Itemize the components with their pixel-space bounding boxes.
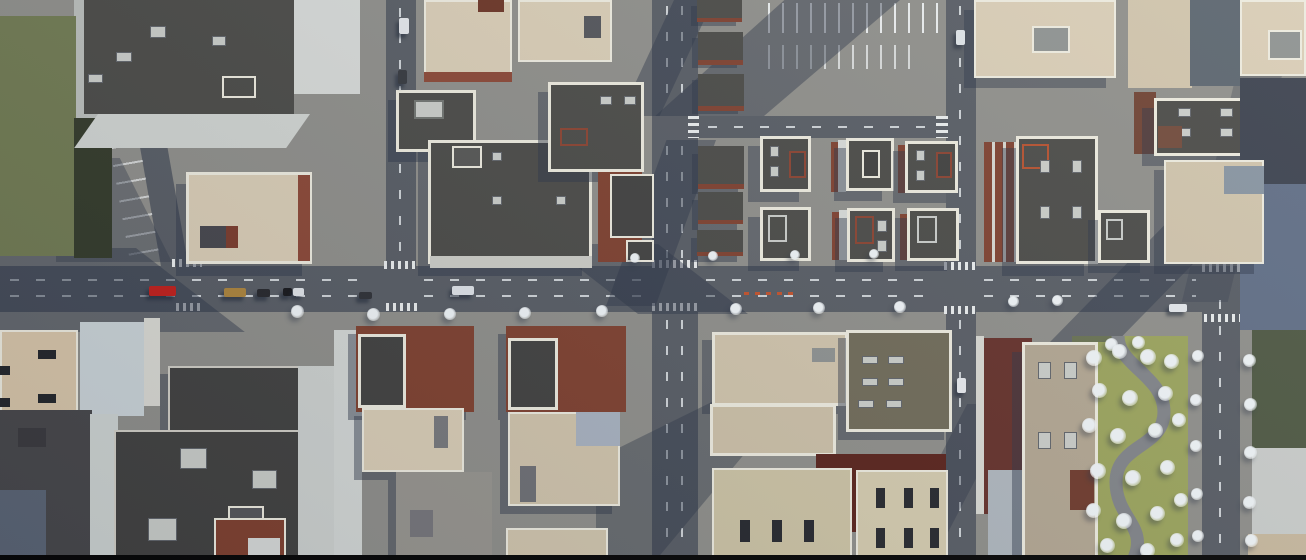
- crosswalk: [1204, 314, 1240, 322]
- park-tree: [1090, 463, 1106, 479]
- facade-col: [298, 366, 334, 560]
- beige-bldg-j: [712, 468, 852, 560]
- tree: [1190, 394, 1202, 406]
- tree: [1244, 446, 1257, 459]
- roof-vent: [492, 152, 502, 161]
- road-v5: [1202, 266, 1240, 560]
- green-tower: [0, 16, 76, 256]
- roof-vent: [150, 26, 166, 38]
- roof-vent-dark: [584, 16, 601, 38]
- facade-strip: [838, 140, 846, 192]
- window: [0, 398, 10, 407]
- lane-dash: [1219, 300, 1221, 552]
- bush: [519, 307, 531, 319]
- brick-strip: [832, 212, 839, 260]
- tree: [1245, 534, 1258, 547]
- small-bldg-brick: [697, 18, 742, 22]
- roof-vent: [1072, 206, 1082, 219]
- p2-roof: [508, 338, 558, 410]
- red-south-wall: [424, 72, 512, 82]
- park-tree: [1172, 413, 1186, 427]
- tree: [1191, 488, 1203, 500]
- park-tree: [1112, 344, 1127, 359]
- roof-unit: [1224, 166, 1264, 194]
- park-tree: [1125, 470, 1141, 486]
- roof-vent: [877, 220, 887, 232]
- lane-dash: [708, 126, 938, 128]
- roof-vent: [770, 166, 779, 177]
- roof-vent: [624, 96, 636, 105]
- roof-vent: [1220, 128, 1233, 137]
- park-tree: [1092, 383, 1107, 398]
- white-sliver: [976, 336, 984, 514]
- shadow-wedge-bldg: [0, 490, 46, 560]
- crosswalk: [944, 262, 978, 270]
- roof-unit: [222, 76, 256, 98]
- dark-roof-s1: [610, 174, 654, 238]
- road-marking-orange: [744, 292, 796, 295]
- bush: [630, 253, 640, 263]
- window: [772, 520, 782, 542]
- roof-vent: [888, 356, 904, 364]
- vehicle-dark-car: [359, 292, 372, 299]
- roof-unit: [452, 146, 482, 168]
- vehicle-dark-car: [398, 70, 407, 84]
- roof-patch-blue: [576, 412, 620, 446]
- vehicle-white-car: [1169, 304, 1187, 312]
- tan-building-nw: [186, 172, 312, 264]
- bush: [367, 308, 380, 321]
- roof-vent: [212, 36, 226, 46]
- vehicle-dark-car: [283, 288, 292, 296]
- park-tree: [1082, 418, 1097, 433]
- vehicle-red-truck: [149, 286, 176, 296]
- roof-vent: [916, 170, 925, 181]
- facade-east: [294, 0, 360, 94]
- vehicle-white-car: [293, 288, 304, 296]
- roof-vent: [1072, 160, 1082, 173]
- park-tree: [1140, 349, 1156, 365]
- roof-unit: [410, 510, 433, 537]
- park-tree: [1164, 354, 1179, 369]
- roof-unit: [434, 416, 448, 448]
- brick-strip: [900, 214, 907, 260]
- roof-vent: [88, 74, 103, 83]
- park-tree: [1122, 390, 1138, 406]
- bush: [869, 249, 879, 259]
- roof-unit: [812, 348, 835, 362]
- roof-vent: [1038, 432, 1051, 449]
- right-edge-white: [1252, 448, 1306, 534]
- blue-tower-tr: [1190, 0, 1240, 86]
- roof-unit: [1032, 26, 1070, 53]
- park-tree: [1158, 386, 1173, 401]
- small-bldg-roof: [698, 146, 744, 186]
- small-bldg-brick: [698, 184, 744, 189]
- vehicle-white-car: [957, 378, 966, 393]
- crosswalk: [384, 261, 418, 269]
- window: [804, 520, 814, 542]
- window: [38, 394, 56, 403]
- roof-unit: [1268, 30, 1302, 60]
- roof-unit: [936, 152, 952, 178]
- window: [740, 520, 750, 542]
- red-west-wall: [1134, 92, 1156, 154]
- roof-vent: [888, 378, 904, 386]
- vehicle-dark-car: [257, 289, 270, 297]
- facade-strip: [839, 210, 847, 260]
- bush: [708, 251, 718, 261]
- roof-vent: [1040, 160, 1050, 173]
- roof-vent: [1038, 362, 1051, 379]
- roof-unit: [148, 518, 177, 541]
- window: [876, 488, 885, 508]
- facade-grid-skew: [74, 114, 310, 148]
- small-bldg-roof: [698, 192, 743, 222]
- tree: [1192, 350, 1204, 362]
- tan-roof-c2: [710, 404, 836, 456]
- right-edge-green: [1252, 330, 1306, 448]
- park-tree: [1170, 533, 1184, 547]
- bush: [291, 305, 304, 318]
- crosswalk: [936, 116, 948, 138]
- stone-bldg: [1022, 342, 1098, 558]
- vehicle-white-van: [452, 286, 474, 295]
- roof-vent: [1040, 206, 1050, 219]
- p1-roof: [358, 334, 406, 408]
- tree: [1243, 354, 1256, 367]
- vehicle-white-car: [956, 30, 965, 45]
- roof-vent: [858, 400, 874, 408]
- park-tree: [1100, 538, 1115, 553]
- roof-vent: [600, 96, 612, 105]
- window: [904, 528, 913, 548]
- tree: [1190, 440, 1202, 452]
- park-tree: [1174, 493, 1188, 507]
- roof-vent-brown: [478, 0, 504, 12]
- park-tree: [1148, 423, 1163, 438]
- small-bldg-roof: [697, 230, 743, 254]
- bush: [813, 302, 825, 314]
- bush: [596, 305, 608, 317]
- park-tree: [1160, 460, 1175, 475]
- small-bldg-roof: [697, 0, 742, 20]
- window: [904, 488, 913, 508]
- roof-unit: [520, 466, 536, 502]
- roof-vent: [1220, 108, 1233, 117]
- roof-vent: [916, 150, 925, 161]
- facade-strip: [144, 318, 160, 406]
- lane-dash: [706, 279, 938, 281]
- bush: [1008, 296, 1019, 307]
- tree: [1244, 398, 1257, 411]
- roof-unit: [252, 470, 277, 489]
- roof-vent-outline: [917, 216, 937, 243]
- roof-vent: [1178, 108, 1191, 117]
- small-bldg-brick: [697, 252, 743, 256]
- vehicle-tan-truck: [224, 288, 246, 297]
- red-east-wall: [298, 175, 310, 261]
- bush: [444, 308, 456, 320]
- small-bldg-roof: [698, 32, 743, 62]
- roof-unit: [862, 150, 880, 178]
- park-tree: [1086, 350, 1102, 366]
- roof-vent: [877, 240, 887, 252]
- roof-vent-dark: [18, 428, 46, 447]
- red-col-walls: [984, 142, 1016, 262]
- window: [876, 528, 885, 548]
- park-tree: [1132, 336, 1145, 349]
- bush: [730, 303, 742, 315]
- roof-vent: [492, 196, 502, 205]
- vehicle-white-car: [399, 18, 409, 34]
- window: [930, 528, 939, 548]
- roof-vent: [1064, 432, 1077, 449]
- park-tree: [1116, 513, 1132, 529]
- roof-vent: [862, 378, 878, 386]
- small-bldg-brick: [698, 220, 743, 224]
- crosswalk: [944, 306, 978, 314]
- small-bldg-brick: [698, 106, 744, 111]
- tan-facade-tr2: [1128, 0, 1192, 88]
- crosswalk: [386, 303, 418, 311]
- park-tree: [1110, 428, 1126, 444]
- park-tree: [1150, 506, 1165, 521]
- lane-dash: [706, 295, 938, 297]
- roof-vent-outline: [768, 215, 787, 242]
- small-bldg-brick: [698, 60, 743, 65]
- window: [38, 350, 56, 359]
- brick-strip: [831, 142, 838, 192]
- small-bldg-roof: [698, 74, 744, 108]
- tree: [1243, 496, 1256, 509]
- roof-unit: [414, 100, 444, 119]
- roof-vent: [1064, 362, 1077, 379]
- park-tree: [1086, 503, 1101, 518]
- roof-vent: [862, 356, 878, 364]
- roof-vent-outline: [560, 128, 588, 146]
- roof-vent: [116, 52, 132, 62]
- window: [930, 488, 939, 508]
- roof-vent-outline: [855, 216, 874, 244]
- window: [0, 366, 10, 375]
- tan-roof-q: [362, 408, 464, 472]
- tan-roof-c1: [712, 332, 848, 406]
- letterbox-bar: [0, 555, 1306, 560]
- white-bldg-bl: [80, 322, 144, 416]
- bush: [894, 301, 906, 313]
- white-base-strip: [430, 256, 592, 268]
- roof-unit: [789, 151, 806, 178]
- facade-dots: [976, 2, 1038, 76]
- roof-vent: [556, 196, 566, 205]
- brick-strip: [898, 145, 905, 193]
- city-aerial-viewport[interactable]: [0, 0, 1306, 560]
- roof-unit: [180, 448, 207, 469]
- roof-unit: [226, 226, 238, 248]
- facade-dots: [1166, 196, 1262, 262]
- roof-vent-outline: [1106, 219, 1123, 240]
- roof-vent: [886, 400, 902, 408]
- bush: [1052, 295, 1063, 306]
- roof-patch-red: [1158, 126, 1182, 148]
- bush: [790, 250, 800, 260]
- crosswalk: [688, 116, 699, 138]
- roof-vent: [770, 146, 779, 157]
- tree: [1192, 530, 1204, 542]
